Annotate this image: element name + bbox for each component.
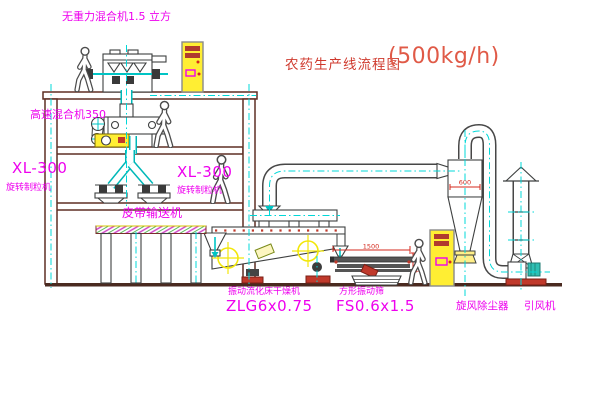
drawing-title: 农药生产线流程图 — [285, 53, 401, 73]
vibrating-sieve — [330, 246, 416, 285]
belt-conveyor — [96, 226, 206, 283]
mixer-side-pipe — [152, 56, 166, 62]
mixer-motor — [118, 137, 125, 143]
label-gravity-mixer: 无重力混合机1.5 立方 — [62, 11, 171, 22]
label-granulator-right-name: 旋转制粒机 — [177, 187, 222, 196]
label-dryer-name: 振动流化床干燥机 — [228, 288, 300, 297]
dryer-exhaust-hood — [253, 210, 337, 227]
fan-base — [506, 279, 546, 285]
cyclone-separator: 600 — [448, 131, 517, 272]
process-flow-drawing: 1500 541 600 — [0, 0, 600, 403]
conveyor-support-legs — [101, 234, 201, 284]
ground-line — [45, 283, 562, 287]
fan-motor — [528, 263, 540, 276]
label-granulator-right-model: XL-300 — [177, 165, 232, 180]
person-figure-1 — [77, 47, 91, 89]
fan-housing — [508, 262, 526, 279]
fluid-bed-dryer — [212, 227, 345, 283]
label-dryer-model: ZLG6x0.75 — [226, 299, 313, 314]
label-cyclone: 旋风除尘器 — [456, 301, 509, 312]
control-cabinet-upper — [182, 42, 203, 92]
dim-sieve-length: 1500 — [363, 243, 380, 251]
person-figure-2 — [156, 101, 170, 145]
label-granulator-left-model: XL-300 — [12, 161, 67, 176]
control-cabinet-lower — [430, 230, 454, 286]
label-sieve-model: FS0.6x1.5 — [336, 299, 415, 314]
y-split-chute — [111, 150, 150, 186]
label-fan: 引风机 — [524, 301, 556, 312]
person-figure-4 — [411, 239, 425, 282]
label-granulator-left-name: 旋转制粒机 — [6, 184, 51, 193]
granulator-right — [138, 185, 170, 203]
label-high-speed-mixer: 高速混合机350 — [30, 109, 106, 120]
drawing-title-capacity: (500kg/h) — [388, 44, 500, 69]
dryer-support-right — [306, 262, 330, 283]
label-belt-conveyor: 皮带输送机 — [122, 207, 182, 219]
floor-slab-2 — [55, 147, 243, 154]
induced-draft-fan — [506, 262, 546, 285]
granulator-left — [95, 185, 127, 203]
label-sieve-name: 方形振动筛 — [339, 288, 384, 297]
